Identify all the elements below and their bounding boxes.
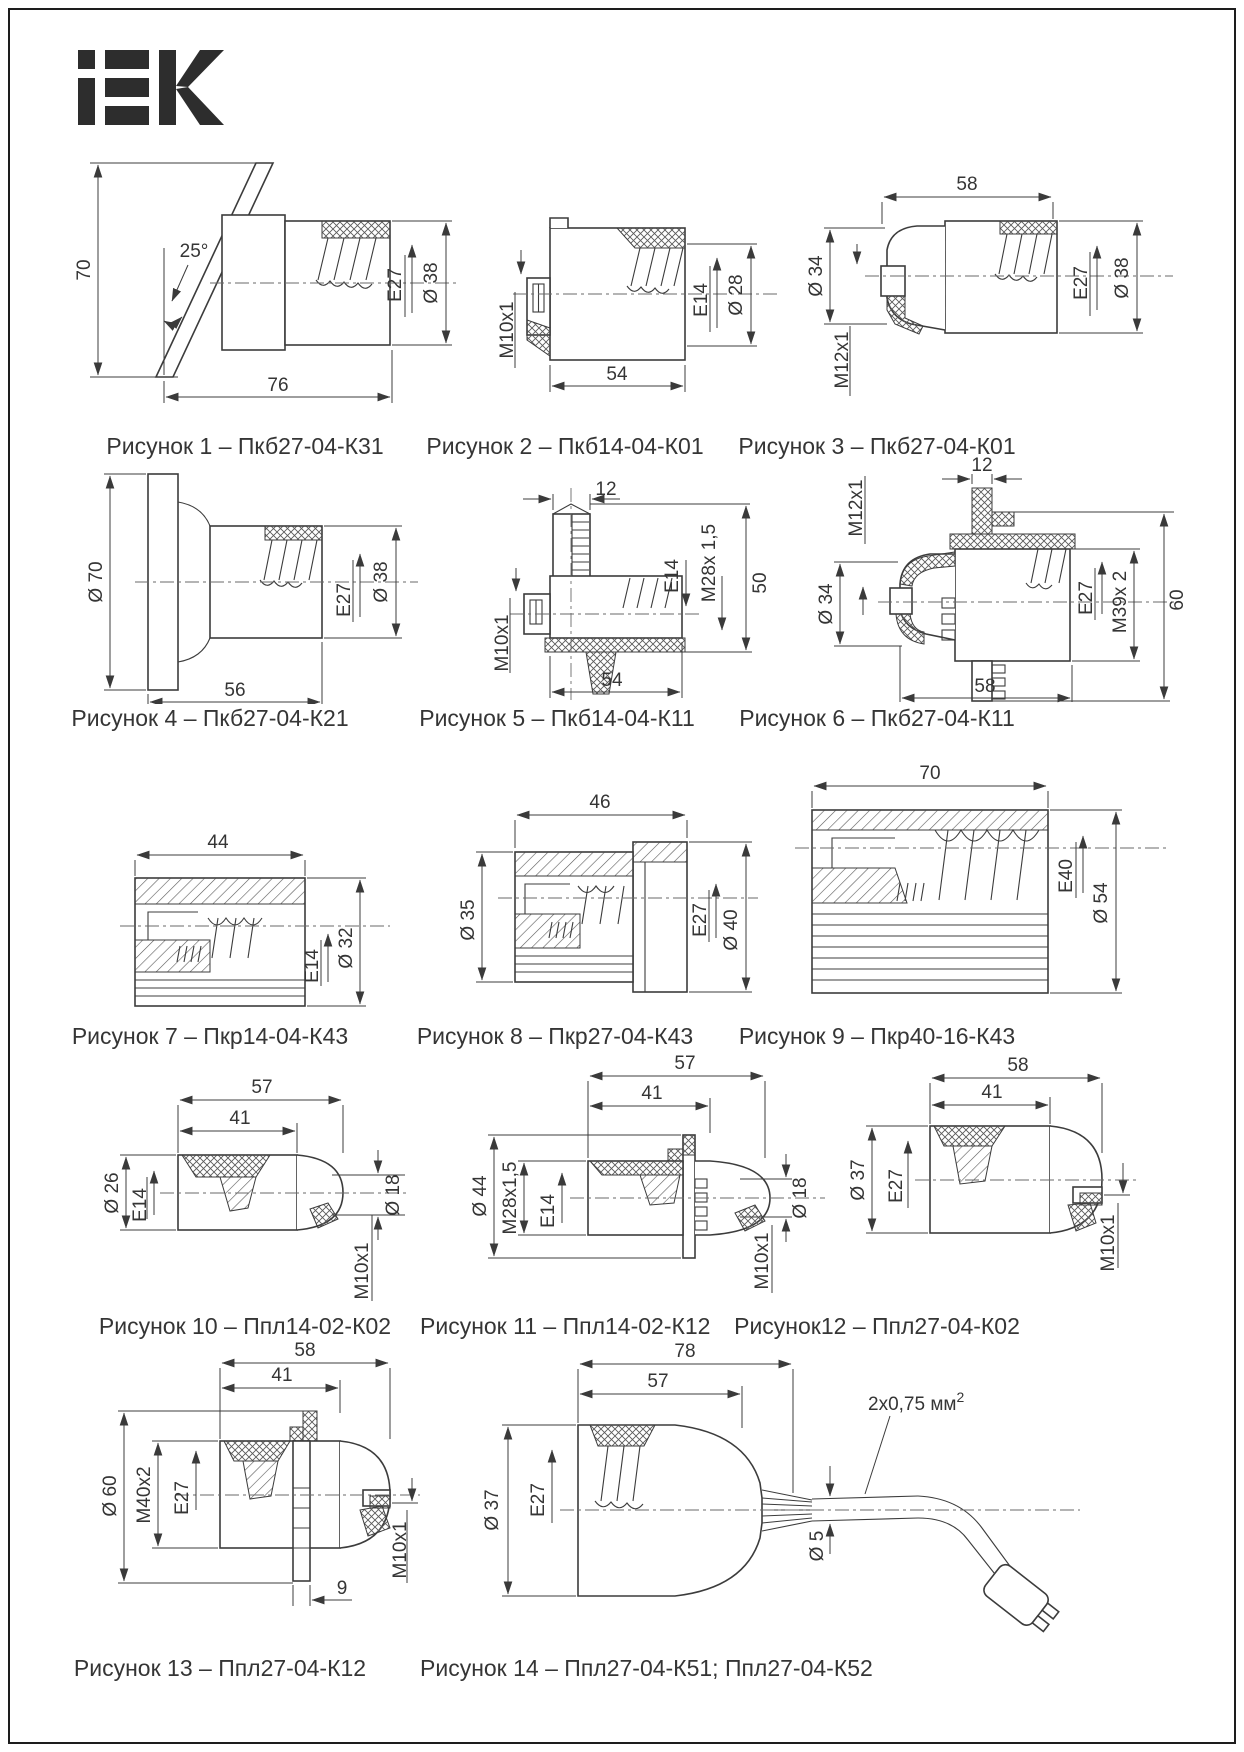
dim-height: 70 <box>74 259 95 280</box>
socket-label: E14 <box>538 1194 559 1228</box>
dim-diameter-left: Ø 34 <box>806 255 827 297</box>
socket-label: E14 <box>130 1188 151 1222</box>
dim-length: 46 <box>589 792 610 813</box>
socket-label: E27 <box>690 903 711 937</box>
svg-defs <box>0 0 1 1</box>
socket-label: E27 <box>1076 581 1097 615</box>
terminal-block <box>981 1561 1063 1637</box>
socket-label: E27 <box>334 583 355 617</box>
socket-label: E27 <box>528 1483 549 1517</box>
dim-diameter-right: Ø 18 <box>790 1177 811 1218</box>
dim-top: 12 <box>595 479 616 500</box>
figure-9-geometry <box>795 786 1170 993</box>
figure-2-drawing: M10x1 54 E14 Ø 28 <box>455 160 785 420</box>
figure-12-drawing: 58 41 Ø 37 E27 M10x1 <box>840 1053 1184 1311</box>
thread-label: M10x1 <box>1098 1214 1119 1271</box>
figure-11-geometry <box>488 1076 825 1293</box>
dim-diameter: Ø 28 <box>726 274 747 315</box>
dim-diameter-left: Ø 60 <box>100 1475 121 1516</box>
socket-label: E40 <box>1056 859 1077 893</box>
thread-label: M10x1 <box>352 1242 373 1299</box>
figure-14-caption: Рисунок 14 – Ппл27-04-К51; Ппл27-04-К52 <box>420 1655 870 1682</box>
thread-label: M12x1 <box>846 479 867 536</box>
thread-label: M10x1 <box>752 1232 773 1289</box>
figure-7-drawing: 44 E14 Ø 32 <box>60 830 420 1020</box>
figure-13-caption: Рисунок 13 – Ппл27-04-К12 <box>60 1655 380 1682</box>
figure-11-drawing: 57 41 Ø 44 M28x1,5 E14 Ø 18 M10x1 <box>440 1053 840 1311</box>
figure-7-caption: Рисунок 7 – Пкр14-04-К43 <box>60 1023 360 1050</box>
socket-label: E27 <box>886 1169 907 1203</box>
dim-length1: 78 <box>674 1341 695 1362</box>
socket-label: E14 <box>302 949 323 983</box>
figure-14-drawing: 78 57 Ø 37 E27 Ø 5 2x0,75 мм2 <box>440 1338 1184 1646</box>
thread-label: M10x1 <box>492 614 513 671</box>
dim-length1: 57 <box>674 1053 695 1074</box>
dim-length2: 57 <box>647 1371 668 1392</box>
socket-label: E14 <box>691 283 712 317</box>
socket-label: E14 <box>662 559 683 593</box>
figure-11: 57 41 Ø 44 M28x1,5 E14 Ø 18 M10x1 <box>440 1053 840 1311</box>
dim-length2: 41 <box>981 1082 1002 1103</box>
figure-14: 78 57 Ø 37 E27 Ø 5 2x0,75 мм2 <box>440 1338 1184 1646</box>
dim-length1: 58 <box>1007 1055 1028 1076</box>
figure-4-caption: Рисунок 4 – Пкб27-04-К21 <box>60 705 360 732</box>
thread-label: M10x1 <box>390 1521 411 1578</box>
dim-diameter-right: Ø 18 <box>383 1174 404 1215</box>
dim-length: 76 <box>267 375 288 396</box>
dim-cable-diameter: Ø 5 <box>807 1531 828 1562</box>
dim-length2: 41 <box>229 1108 250 1129</box>
figure-12: 58 41 Ø 37 E27 M10x1 <box>840 1053 1184 1311</box>
thread2-label: M39x 2 <box>1110 571 1131 633</box>
thread-label: M12x1 <box>832 331 853 388</box>
figure-11-caption: Рисунок 11 – Ппл14-02-К12 <box>420 1313 710 1340</box>
thread2-label: M28x 1,5 <box>699 524 720 602</box>
figure-3-caption: Рисунок 3 – Пкб27-04-К01 <box>727 433 1027 460</box>
figure-8-caption: Рисунок 8 – Пкр27-04-К43 <box>410 1023 700 1050</box>
figure-6: M12x1 12 Ø 34 E27 M39x 2 60 58 <box>750 450 1184 705</box>
dim-length1: 58 <box>294 1340 315 1361</box>
dim-height: 60 <box>1167 589 1184 610</box>
figure-10-caption: Рисунок 10 – Ппл14-02-К02 <box>60 1313 430 1340</box>
figure-3-drawing: 58 Ø 34 M12x1 E27 Ø 38 <box>745 148 1185 430</box>
figure-9-drawing: 70 E40 Ø 54 <box>720 688 1190 1018</box>
dim-diameter: Ø 54 <box>1091 882 1112 924</box>
figure-5-drawing: 12 M10x1 54 E14 M28x 1,5 50 <box>450 448 785 704</box>
dim-length2: 41 <box>271 1365 292 1386</box>
dim-diameter: Ø 38 <box>421 262 442 303</box>
dim-length: 58 <box>956 174 977 195</box>
figure-10-drawing: 57 41 Ø 26 E14 Ø 18 M10x1 <box>60 1053 440 1311</box>
figure-2: M10x1 54 E14 Ø 28 <box>455 160 785 420</box>
dim-flange: 9 <box>337 1578 348 1599</box>
figure-3: 58 Ø 34 M12x1 E27 Ø 38 <box>745 148 1185 430</box>
iek-logo-glyphs <box>78 50 224 125</box>
figure-2-caption: Рисунок 2 – Пкб14-04-К01 <box>415 433 715 460</box>
dim-diameter-left: Ø 26 <box>102 1172 123 1213</box>
dim-diameter-right: Ø 38 <box>1112 257 1133 298</box>
dim-angle: 25° <box>180 241 209 262</box>
socket-label: E27 <box>172 1481 193 1515</box>
figure-4-drawing: Ø 70 56 E27 Ø 38 <box>60 462 430 704</box>
thread2-label: M28x1,5 <box>500 1162 521 1235</box>
dim-diameter: Ø 32 <box>336 927 357 968</box>
figure-1: 70 25° 76 E27 Ø 38 <box>60 145 460 425</box>
figure-6-drawing: M12x1 12 Ø 34 E27 M39x 2 60 58 <box>750 450 1184 705</box>
figure-13-geometry <box>118 1363 420 1606</box>
cable-spec-label: 2x0,75 мм2 <box>868 1389 964 1415</box>
dim-diameter-left: Ø 37 <box>848 1159 869 1200</box>
figure-1-drawing: 70 25° 76 E27 Ø 38 <box>60 145 460 425</box>
figure-7: 44 E14 Ø 32 <box>60 830 420 1020</box>
dim-length2: 41 <box>641 1083 662 1104</box>
dim-length: 54 <box>601 670 623 691</box>
dim-length1: 57 <box>251 1077 272 1098</box>
figure-9-caption: Рисунок 9 – Пкр40-16-К43 <box>727 1023 1027 1050</box>
figure-1-caption: Рисунок 1 – Пкб27-04-К31 <box>60 433 430 460</box>
figure-6-caption: Рисунок 6 – Пкб27-04-К11 <box>727 705 1027 732</box>
socket-label: E27 <box>1071 266 1092 300</box>
figure-9: 70 E40 Ø 54 <box>720 688 1190 1018</box>
dim-diameter-left: Ø 34 <box>816 583 837 625</box>
figure-13: 58 41 Ø 60 M40x2 E27 M10x1 9 <box>60 1338 432 1646</box>
socket-label: E27 <box>385 268 406 302</box>
dim-length: 70 <box>919 763 940 784</box>
figure-8-geometry <box>476 815 758 992</box>
dim-length: 56 <box>224 680 245 701</box>
dim-diameter-left: Ø 35 <box>458 899 479 940</box>
iek-logo <box>78 50 228 133</box>
figure-5: 12 M10x1 54 E14 M28x 1,5 50 <box>450 448 785 704</box>
figure-5-caption: Рисунок 5 – Пкб14-04-К11 <box>412 705 702 732</box>
dim-diameter-left: Ø 37 <box>482 1489 503 1530</box>
dim-length: 44 <box>207 832 229 853</box>
dim-diameter-left: Ø 44 <box>470 1175 491 1217</box>
figure-10: 57 41 Ø 26 E14 Ø 18 M10x1 <box>60 1053 440 1311</box>
dim-length: 54 <box>606 364 628 385</box>
thread-label: M10x1 <box>497 301 518 358</box>
figure-14-geometry <box>502 1364 1080 1637</box>
figure-12-caption: Рисунок12 – Ппл27-04-К02 <box>727 1313 1027 1340</box>
dim-diameter-right: Ø 38 <box>371 561 392 602</box>
iek-logo-mark <box>78 50 228 128</box>
figure-4: Ø 70 56 E27 Ø 38 <box>60 462 430 704</box>
dim-diameter-left: Ø 70 <box>86 561 107 602</box>
figure-13-drawing: 58 41 Ø 60 M40x2 E27 M10x1 9 <box>60 1338 432 1646</box>
catalog-page: 70 25° 76 E27 Ø 38 <box>0 0 1244 1752</box>
thread2-label: M40x2 <box>134 1466 155 1523</box>
